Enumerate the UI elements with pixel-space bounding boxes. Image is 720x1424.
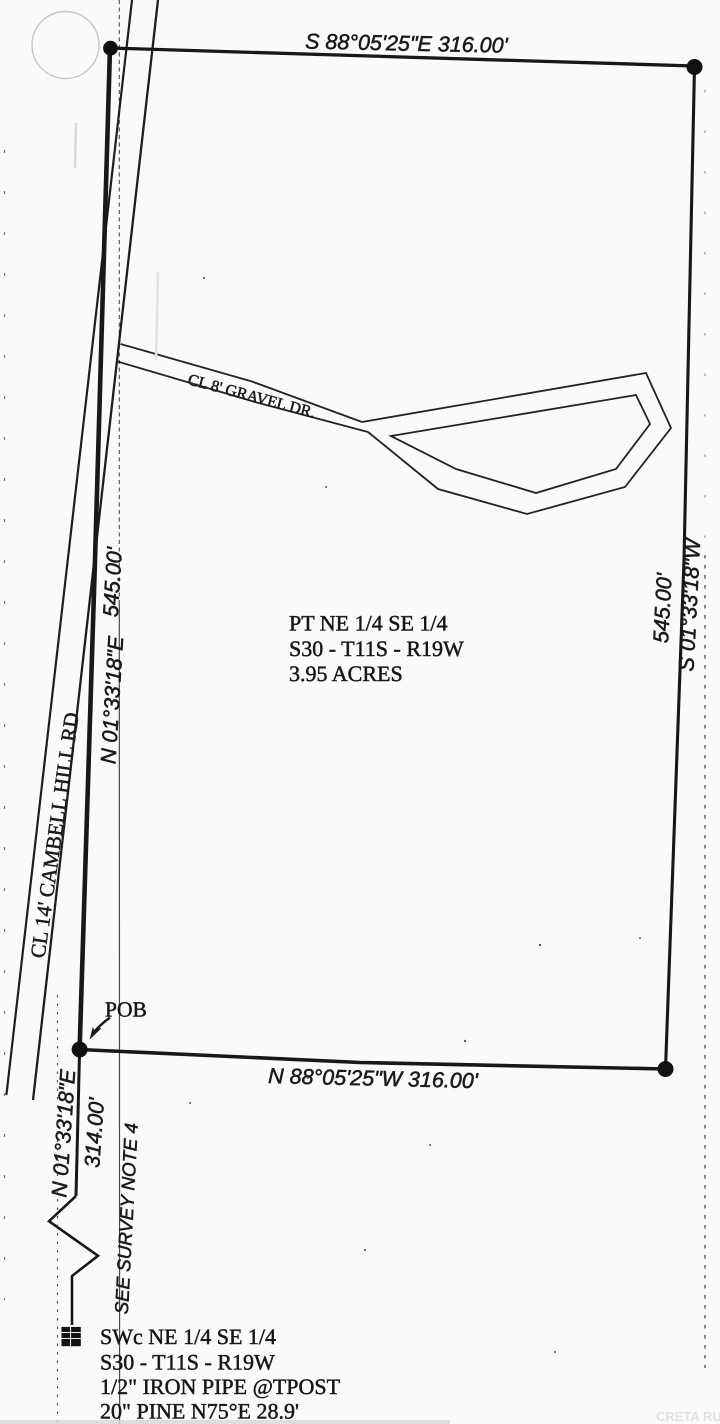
- svg-text:1/2" IRON PIPE @TPOST: 1/2" IRON PIPE @TPOST: [100, 1374, 341, 1399]
- svg-text:314.00': 314.00': [80, 1096, 109, 1168]
- svg-text:545.00': 545.00': [99, 546, 127, 618]
- svg-text:545.00': 545.00': [649, 572, 677, 644]
- svg-text:PT NE 1/4 SE 1/4: PT NE 1/4 SE 1/4: [289, 611, 448, 636]
- svg-text:20" PINE N75°E 28.9': 20" PINE N75°E 28.9': [100, 1399, 299, 1424]
- svg-text:POB: POB: [105, 998, 147, 1022]
- svg-text:CRETA RU: CRETA RU: [656, 1409, 720, 1424]
- svg-text:3.95 ACRES: 3.95 ACRES: [289, 661, 403, 686]
- svg-text:SWc NE 1/4 SE 1/4: SWc NE 1/4 SE 1/4: [100, 1324, 276, 1349]
- svg-text:S 88°05'25"E 316.00': S 88°05'25"E 316.00': [305, 30, 509, 58]
- svg-text:S30 - T11S - R19W: S30 - T11S - R19W: [289, 636, 464, 661]
- svg-text:S30 - T11S - R19W: S30 - T11S - R19W: [100, 1350, 275, 1375]
